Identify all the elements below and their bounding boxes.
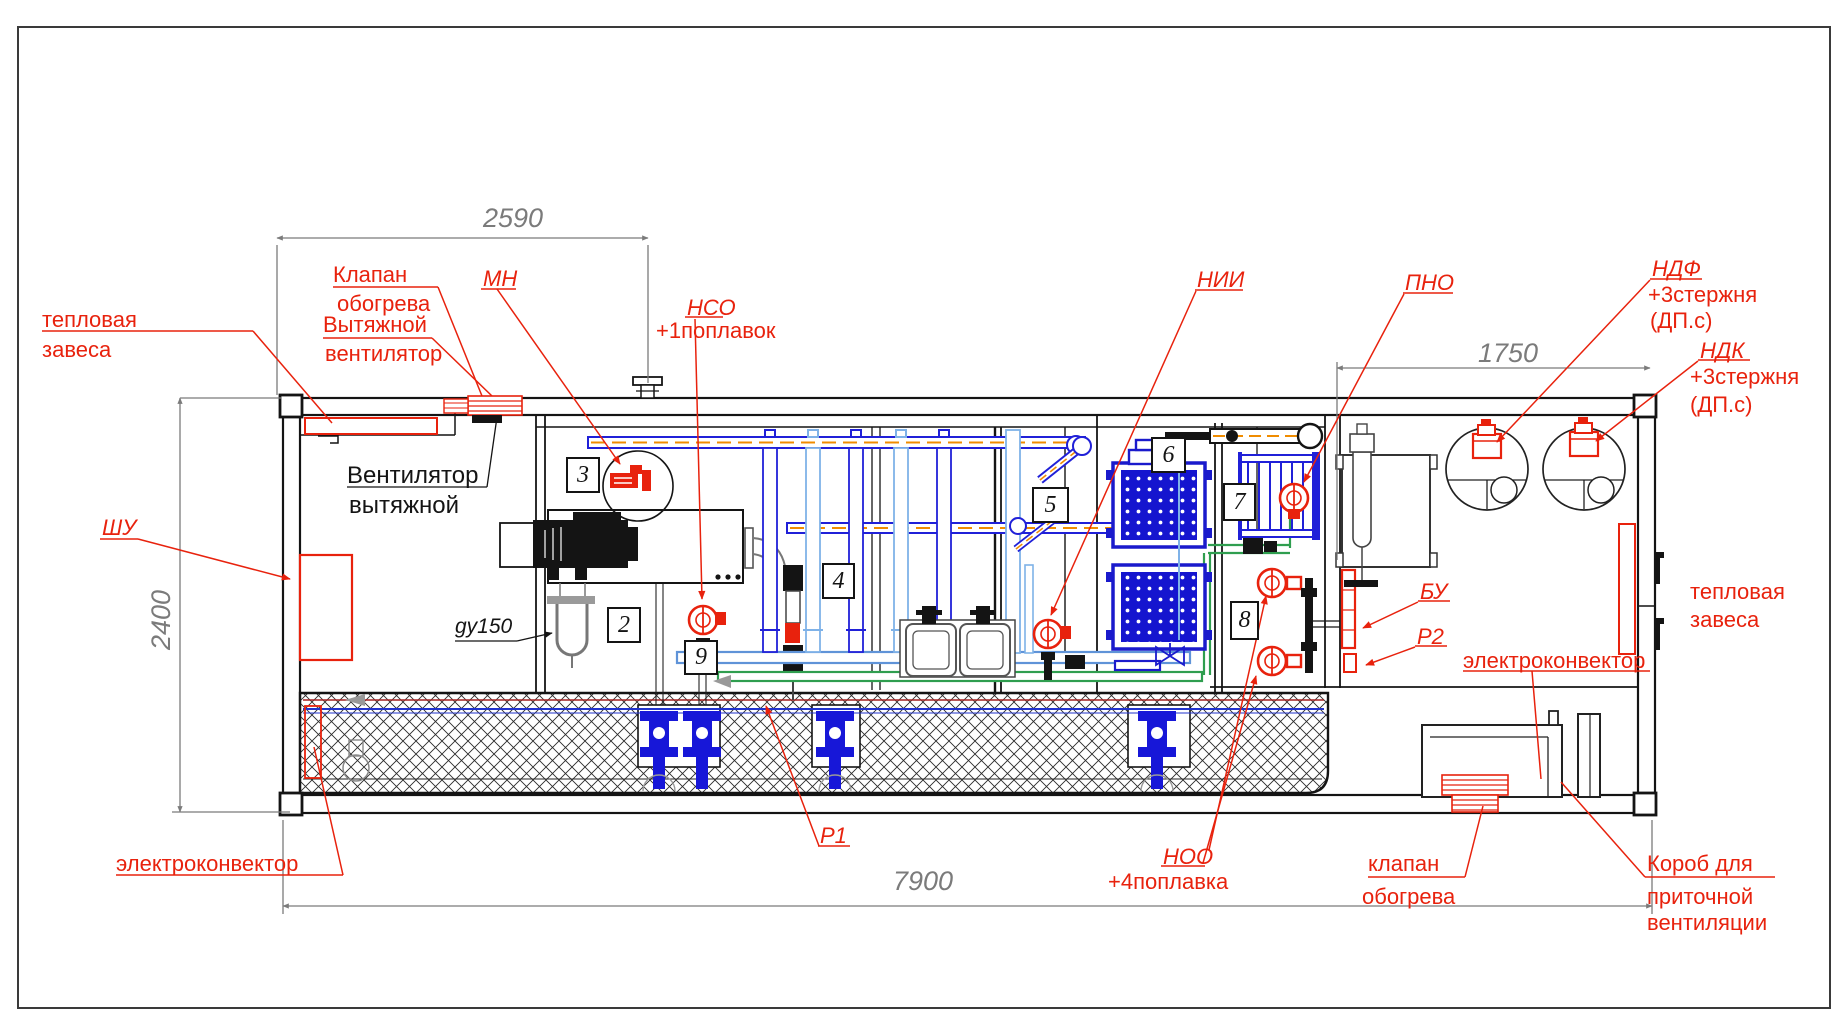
label-electroconvector-right: электроконвектор <box>1463 647 1645 675</box>
label-nso-note: +1поплавок <box>656 317 776 345</box>
heating-valve-bottom-unit <box>1442 775 1508 812</box>
label-thermal-curtain-right-1: тепловая <box>1690 578 1785 606</box>
label-electroconvector-left: электроконвектор <box>116 850 298 878</box>
biofilter-tanks <box>1106 440 1212 670</box>
mn-pump-unit <box>610 465 651 491</box>
label-heating-valve-bottom-1: клапан <box>1368 850 1439 878</box>
label-exhaust-fan-black-1: Вентилятор <box>347 461 478 491</box>
zone-box-9: 9 <box>684 640 718 675</box>
dim-1750: 1750 <box>1478 338 1538 369</box>
label-mn: МН <box>483 265 517 293</box>
zone-box-2: 2 <box>607 607 641 643</box>
door-hinge-icon <box>1655 552 1664 650</box>
thermal-curtain-right-unit <box>1619 524 1635 654</box>
label-thermal-curtain-left-1: тепловая <box>42 306 137 334</box>
label-noo-note: +4поплавка <box>1108 868 1228 896</box>
insulated-floor <box>300 693 1328 793</box>
zone-box-4: 4 <box>822 563 855 599</box>
label-bu: БУ <box>1420 578 1447 606</box>
drawing-canvas: тепловая завеса Клапан обогрева Вытяжной… <box>0 0 1847 1035</box>
zone-box-5: 5 <box>1032 487 1069 523</box>
label-control-cabinet: ШУ <box>102 514 136 542</box>
label-exhaust-fan-red-1: Вытяжной <box>323 311 427 339</box>
dim-2400: 2400 <box>146 590 177 650</box>
zone-box-7: 7 <box>1223 483 1256 521</box>
thermal-curtain-unit <box>305 418 437 434</box>
label-supply-duct-2: приточной <box>1647 883 1753 911</box>
label-thermal-curtain-right-2: завеса <box>1690 606 1759 634</box>
outlet-pumps <box>1258 569 1340 675</box>
dim-2590: 2590 <box>483 203 543 234</box>
label-pno: ПНО <box>1405 269 1454 297</box>
label-ndf-tag: НДФ <box>1652 255 1701 283</box>
label-p2: Р2 <box>1417 623 1444 651</box>
dim-7900: 7900 <box>893 866 953 897</box>
label-supply-duct-3: вентиляции <box>1647 909 1767 937</box>
ndf-well <box>1446 419 1528 510</box>
zone-box-8: 8 <box>1230 601 1259 640</box>
label-ndf-note1: +3стержня <box>1648 281 1757 309</box>
silencer-gy150 <box>547 583 595 668</box>
dosing-vessels <box>900 606 1015 677</box>
utility-room <box>1336 417 1635 812</box>
zone-box-3: 3 <box>566 457 600 493</box>
label-gy150: gy150 <box>455 614 512 640</box>
ndk-well <box>1543 417 1625 510</box>
label-ndk-note1: +3стержня <box>1690 363 1799 391</box>
label-thermal-curtain-left-2: завеса <box>42 336 111 364</box>
label-heating-valve-bottom-2: обогрева <box>1362 883 1455 911</box>
label-p1: Р1 <box>820 822 847 850</box>
label-ndk-tag: НДК <box>1700 337 1744 365</box>
label-exhaust-fan-black-2: вытяжной <box>349 491 459 521</box>
zone-box-6: 6 <box>1151 437 1186 473</box>
label-nii: НИИ <box>1197 266 1244 294</box>
label-supply-duct-1: Короб для <box>1647 850 1753 878</box>
label-ndf-note2: (ДП.с) <box>1650 307 1712 335</box>
label-exhaust-fan-red-2: вентилятор <box>325 340 442 368</box>
label-heating-valve-top-1: Клапан <box>333 261 407 289</box>
control-cabinet-unit <box>300 555 352 660</box>
label-ndk-note2: (ДП.с) <box>1690 391 1752 419</box>
label-noo-tag: НОО <box>1163 843 1213 871</box>
